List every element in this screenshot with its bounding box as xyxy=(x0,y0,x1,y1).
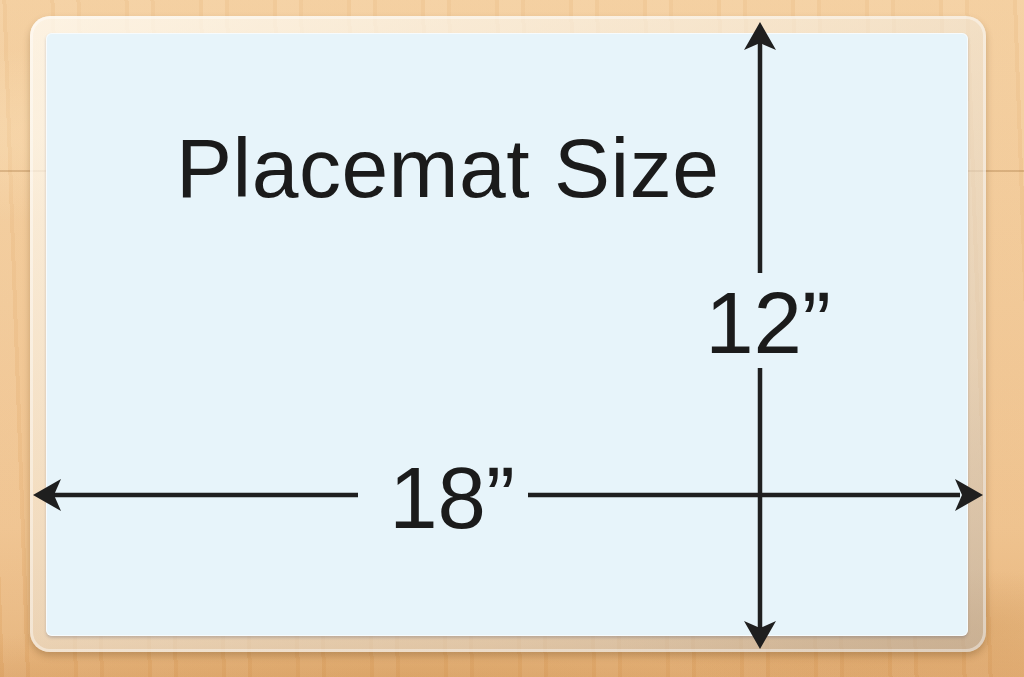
placemat xyxy=(30,16,986,652)
scene: Placemat Size 18” 12” xyxy=(0,0,1024,677)
width-dimension-label: 18” xyxy=(389,454,515,541)
placemat-title: Placemat Size xyxy=(176,126,719,210)
height-dimension-label: 12” xyxy=(705,279,831,366)
